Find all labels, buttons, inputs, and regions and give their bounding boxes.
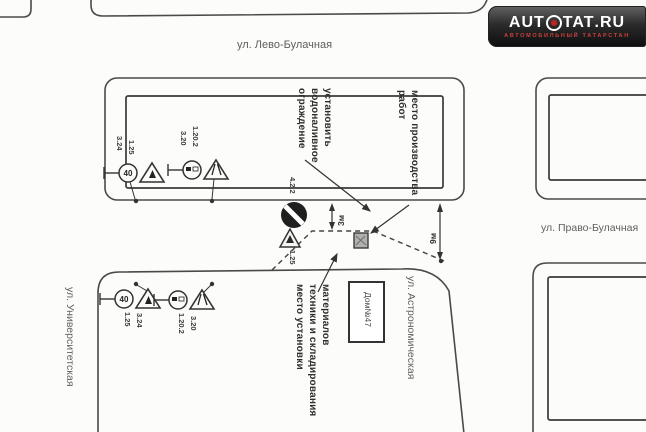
note-install-barrier: установить водоналивное ограждение — [295, 88, 334, 163]
note-line: место установки — [293, 284, 306, 416]
steering-wheel-icon — [546, 15, 562, 31]
logo-tagline: АВТОМОБИЛЬНЫЙ ТАТАРСТАН — [504, 33, 630, 39]
equipment-square-marker — [354, 233, 368, 248]
sign-label-1-25: 1.25 — [122, 312, 132, 327]
sign-group-bottom-right — [154, 282, 214, 309]
traffic-scheme-scan: 40 40 — [0, 0, 646, 432]
block-top-edge — [91, 0, 487, 16]
block-bottom-right — [533, 263, 646, 432]
street-label-pravo-bulachnaya: ул. Право-Булачная — [541, 222, 638, 234]
note-line: место производства — [408, 90, 421, 195]
street-label-universitetskaya: ул. Университетская — [64, 287, 76, 387]
note-line: установить — [321, 88, 334, 163]
note-line: водоналивное — [308, 88, 321, 163]
sign-label-3-20: 3.20 — [178, 131, 188, 146]
house-47-label: Дом№47 — [362, 292, 373, 327]
logo-text-left: AUT — [509, 15, 545, 31]
sign-label-3-24: 3.24 — [134, 313, 144, 328]
dimension-label-9m: 9м — [428, 233, 438, 244]
speed-limit-value: 40 — [120, 295, 129, 304]
workzone-leader-arrow — [371, 205, 409, 233]
sign-group-top-right — [168, 160, 228, 203]
sign-label-3-20: 3.20 — [188, 316, 198, 331]
building-bottom-right — [548, 277, 646, 420]
street-label-astronomicheskaya: ул. Астрономическая — [405, 276, 417, 379]
sign-roadworks-center — [280, 229, 300, 247]
note-line: работ — [395, 90, 408, 195]
logo-text-right: TAT — [563, 15, 595, 31]
sign-detour-4-2-2 — [281, 202, 307, 228]
sign-label-3-24: 3.24 — [114, 136, 124, 151]
note-line: материалов — [319, 284, 332, 416]
logo-text-tld: .RU — [595, 15, 626, 31]
sign-group-bottom-left: 40 — [100, 282, 160, 308]
sign-label-1-20-2: 1.20.2 — [176, 313, 186, 334]
barrier-leader-arrow — [305, 160, 370, 211]
autotat-logo: AUTTAT.RU АВТОМОБИЛЬНЫЙ ТАТАРСТАН — [488, 6, 646, 47]
sign-label-4-2-2: 4.2.2 — [287, 177, 297, 194]
sign-label-1-20-2: 1.20.2 — [190, 126, 200, 147]
note-equipment-storage: материалов техники и складирования место… — [293, 284, 332, 416]
note-line: техники и складирования — [306, 284, 319, 416]
road-narrows-sign-icon — [190, 290, 214, 309]
note-work-zone: место производства работ — [395, 90, 421, 195]
road-narrows-sign-icon — [204, 160, 228, 179]
logo-wordmark: AUTTAT.RU — [509, 15, 625, 31]
building-right — [549, 95, 646, 180]
block-top-left-corner — [0, 0, 31, 17]
dimension-label-3m: 3м — [336, 215, 346, 226]
sign-group-top-left: 40 — [104, 163, 164, 203]
speed-limit-value: 40 — [124, 169, 133, 178]
sign-label-1-25: 1.25 — [126, 140, 136, 155]
street-label-levo-bulachnaya: ул. Лево-Булачная — [237, 39, 332, 51]
sign-label-1-25: 1.25 — [287, 250, 297, 265]
dimension-3m — [329, 203, 335, 230]
note-line: ограждение — [295, 88, 308, 163]
